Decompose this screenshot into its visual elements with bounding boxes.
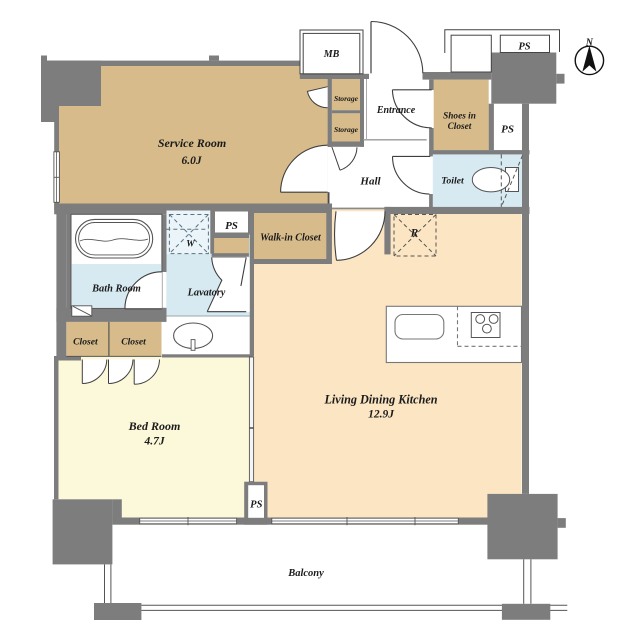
svg-text:Living Dining Kitchen: Living Dining Kitchen (323, 393, 437, 407)
svg-text:Hall: Hall (359, 176, 381, 188)
svg-text:PS: PS (250, 500, 262, 511)
svg-text:Walk-in Closet: Walk-in Closet (260, 233, 322, 244)
svg-text:R: R (410, 228, 419, 240)
svg-text:Lavatory: Lavatory (187, 288, 226, 299)
svg-text:Entrance: Entrance (376, 105, 416, 116)
svg-text:Closet: Closet (448, 122, 472, 132)
svg-text:W: W (186, 240, 195, 250)
svg-text:Bath Room: Bath Room (91, 284, 141, 295)
svg-text:Storage: Storage (334, 125, 359, 134)
svg-text:PS: PS (518, 42, 530, 53)
svg-text:PS: PS (501, 124, 514, 136)
svg-text:N: N (585, 38, 594, 49)
svg-text:6.0J: 6.0J (181, 155, 202, 167)
svg-text:Toilet: Toilet (441, 176, 464, 187)
svg-text:Bed Room: Bed Room (128, 419, 181, 433)
svg-text:Closet: Closet (73, 337, 98, 348)
svg-text:12.9J: 12.9J (368, 409, 395, 421)
svg-text:Balcony: Balcony (287, 568, 324, 579)
svg-text:Service Room: Service Room (158, 136, 226, 150)
svg-text:Closet: Closet (121, 337, 146, 348)
svg-text:Storage: Storage (334, 94, 359, 103)
svg-text:4.7J: 4.7J (143, 436, 165, 448)
svg-text:Shoes in: Shoes in (443, 112, 476, 122)
svg-text:PS: PS (225, 220, 238, 232)
svg-text:MB: MB (323, 49, 340, 60)
